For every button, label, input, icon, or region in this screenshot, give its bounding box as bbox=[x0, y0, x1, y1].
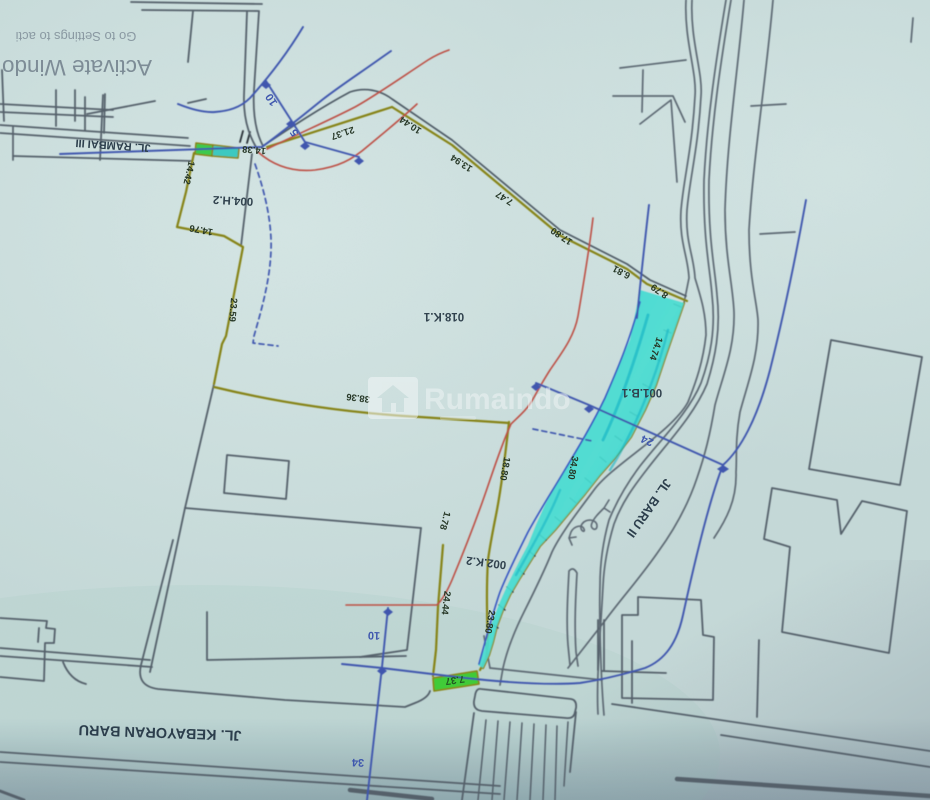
svg-text:Activate Windo: Activate Windo bbox=[2, 55, 152, 80]
svg-text:004.H.2: 004.H.2 bbox=[213, 193, 254, 207]
svg-text:018.K.1: 018.K.1 bbox=[423, 310, 464, 322]
svg-text:10: 10 bbox=[368, 629, 381, 641]
svg-text:14.38: 14.38 bbox=[242, 143, 267, 156]
svg-text:Go to Settings to acti: Go to Settings to acti bbox=[16, 29, 137, 44]
svg-text:001.B.1: 001.B.1 bbox=[621, 386, 662, 398]
svg-text:Rumaindo: Rumaindo bbox=[424, 383, 571, 416]
svg-text:23.59: 23.59 bbox=[226, 298, 239, 323]
svg-text:34: 34 bbox=[351, 756, 365, 768]
